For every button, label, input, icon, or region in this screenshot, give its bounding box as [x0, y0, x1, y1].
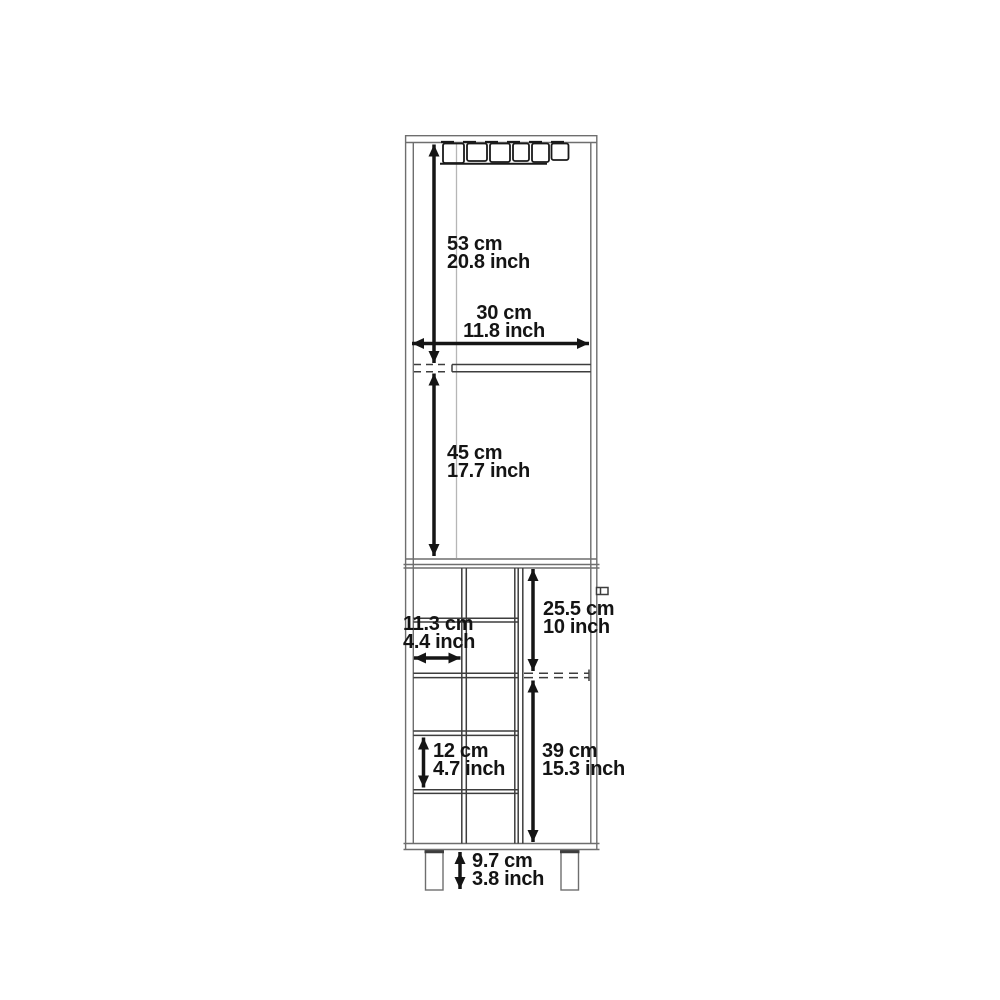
- dimension-label-middle-section-height: 45 cm 17.7 inch: [447, 445, 530, 480]
- dimension-label-door-lower-height: 39 cm 15.3 inch: [542, 743, 625, 778]
- top-shelf: [414, 365, 591, 372]
- dimension-label-leg-height: 9.7 cm 3.8 inch: [472, 853, 544, 888]
- dimension-value-inch: 15.3 inch: [542, 761, 625, 779]
- dimension-label-cabinet-width: 30 cm 11.8 inch: [461, 305, 547, 340]
- dimension-label-upper-section-height: 53 cm 20.8 inch: [447, 236, 530, 271]
- dimension-value-inch: 4.7 inch: [433, 761, 505, 779]
- right-leg: [561, 850, 579, 890]
- dimension-value-inch: 17.7 inch: [447, 463, 530, 481]
- dimension-label-cubby-height: 12 cm 4.7 inch: [433, 743, 505, 778]
- glass-rack: [440, 142, 569, 164]
- dimension-value-inch: 20.8 inch: [447, 254, 530, 272]
- door-handle: [597, 588, 609, 595]
- left-leg: [426, 850, 444, 890]
- dimension-value-inch: 4.4 inch: [403, 634, 475, 652]
- dimension-diagram: 53 cm 20.8 inch 30 cm 11.8 inch 45 cm 17…: [0, 0, 1000, 1000]
- dimension-value-inch: 3.8 inch: [472, 871, 544, 889]
- dimension-label-cubby-width: 11.3 cm 4.4 inch: [403, 616, 475, 651]
- dimension-value-inch: 10 inch: [543, 619, 614, 637]
- dimension-value-inch: 11.8 inch: [461, 323, 547, 341]
- dimension-label-door-upper-height: 25.5 cm 10 inch: [543, 601, 614, 636]
- bottle-cubby-grid: [413, 568, 518, 844]
